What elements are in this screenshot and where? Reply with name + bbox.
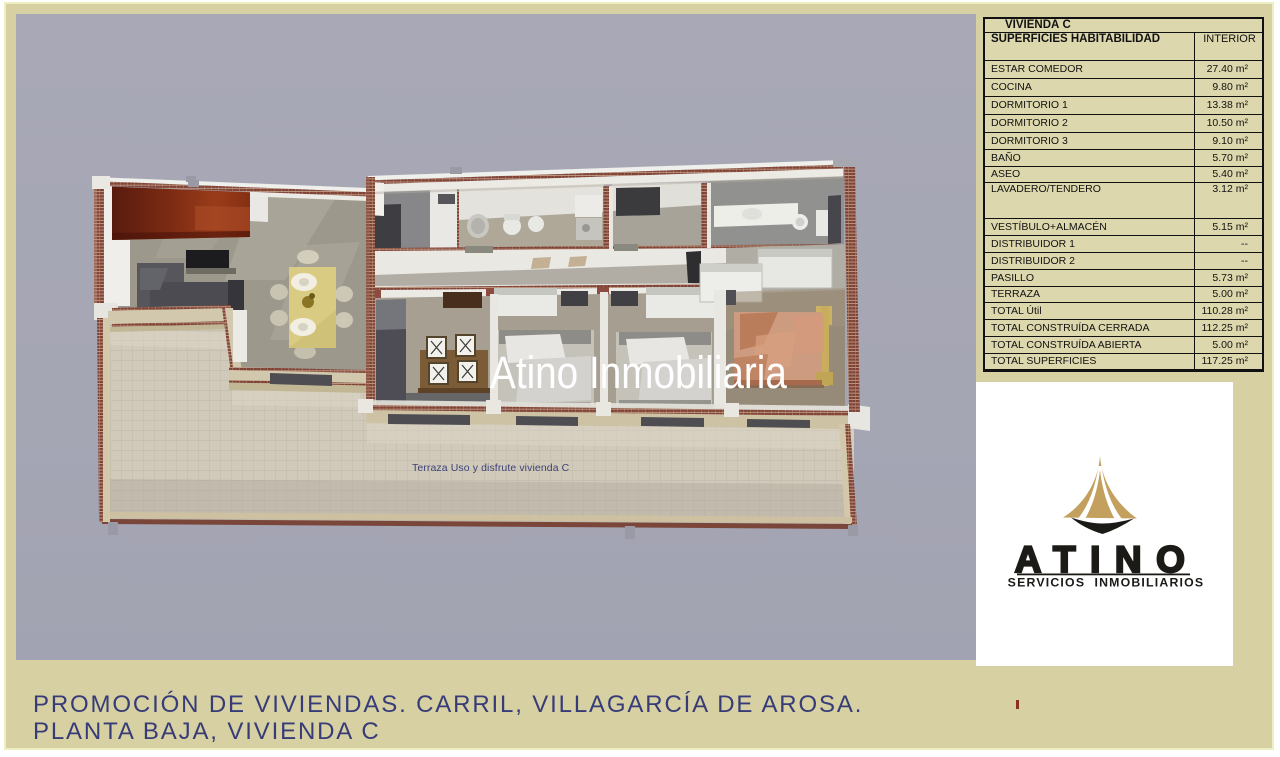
svg-text:SERVICIOS INMOBILIARIOS: SERVICIOS INMOBILIARIOS [1008,576,1205,590]
